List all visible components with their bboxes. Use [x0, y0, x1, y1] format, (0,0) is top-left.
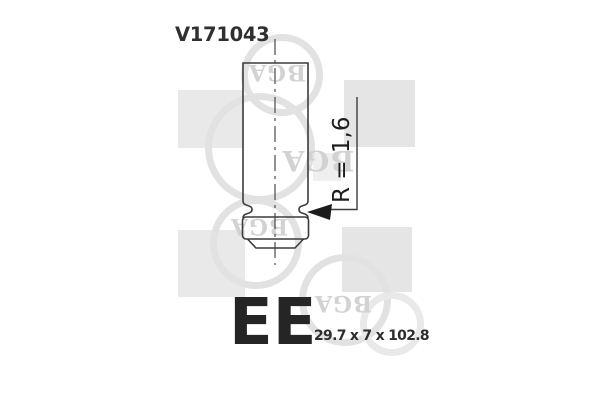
valve-type-code: EE — [229, 291, 316, 355]
valve-dimensions: 29.7 x 7 x 102.8 — [314, 329, 429, 343]
leader-arrowhead-icon — [307, 204, 332, 220]
radius-label: R = 1,6 — [329, 117, 355, 203]
catalog-part-diagram: BGA BGA BGA BGA R = 1,6 V171043 EE 29.7 … — [0, 0, 600, 400]
part-number: V171043 — [175, 25, 269, 45]
